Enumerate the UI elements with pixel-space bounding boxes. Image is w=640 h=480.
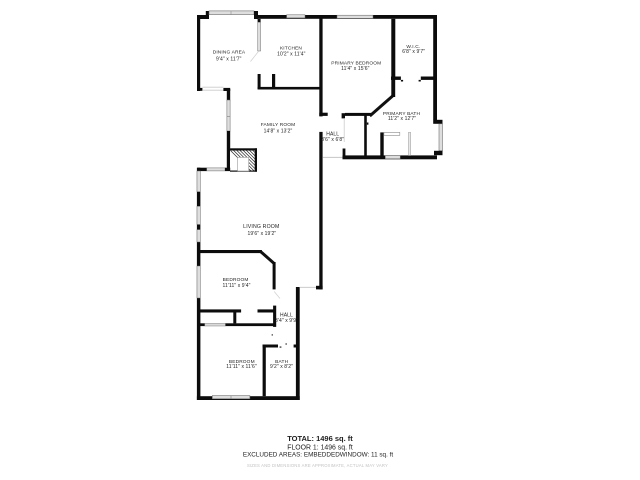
- svg-text:EXCLUDED AREAS: EMBEDDEDWINDOW: EXCLUDED AREAS: EMBEDDEDWINDOW: 11 sq. f…: [243, 452, 394, 459]
- svg-text:BEDROOM: BEDROOM: [223, 277, 249, 283]
- svg-text:3'6" x 6'8": 3'6" x 6'8": [321, 137, 344, 143]
- svg-text:9'2" x 8'2": 9'2" x 8'2": [270, 364, 293, 370]
- svg-text:11'2" x 12'7": 11'2" x 12'7": [388, 116, 416, 122]
- svg-text:FAMILY ROOM: FAMILY ROOM: [261, 122, 296, 128]
- svg-text:FLOOR 1: 1496 sq. ft: FLOOR 1: 1496 sq. ft: [287, 445, 353, 452]
- svg-text:6'8" x 9'7": 6'8" x 9'7": [402, 49, 425, 55]
- svg-text:TOTAL: 1496 sq. ft: TOTAL: 1496 sq. ft: [287, 434, 353, 443]
- svg-text:14'8" x 13'2": 14'8" x 13'2": [264, 128, 293, 134]
- svg-text:11'11" x 9'4": 11'11" x 9'4": [223, 283, 251, 289]
- svg-text:10'2" x 11'4": 10'2" x 11'4": [277, 51, 305, 57]
- svg-text:9'4" x 11'7": 9'4" x 11'7": [216, 56, 242, 62]
- svg-text:19'6" x 19'2": 19'6" x 19'2": [248, 231, 277, 237]
- svg-text:SIZES AND DIMENSIONS ARE APPRO: SIZES AND DIMENSIONS ARE APPROXIMATE, AC…: [247, 463, 388, 468]
- svg-text:11'11" x 11'6": 11'11" x 11'6": [226, 364, 257, 370]
- svg-text:3'4" x 9'9": 3'4" x 9'9": [275, 318, 298, 324]
- svg-text:LIVING ROOM: LIVING ROOM: [243, 224, 279, 230]
- svg-text:DINING AREA: DINING AREA: [213, 50, 246, 56]
- svg-text:11'4" x 15'6": 11'4" x 15'6": [341, 66, 369, 72]
